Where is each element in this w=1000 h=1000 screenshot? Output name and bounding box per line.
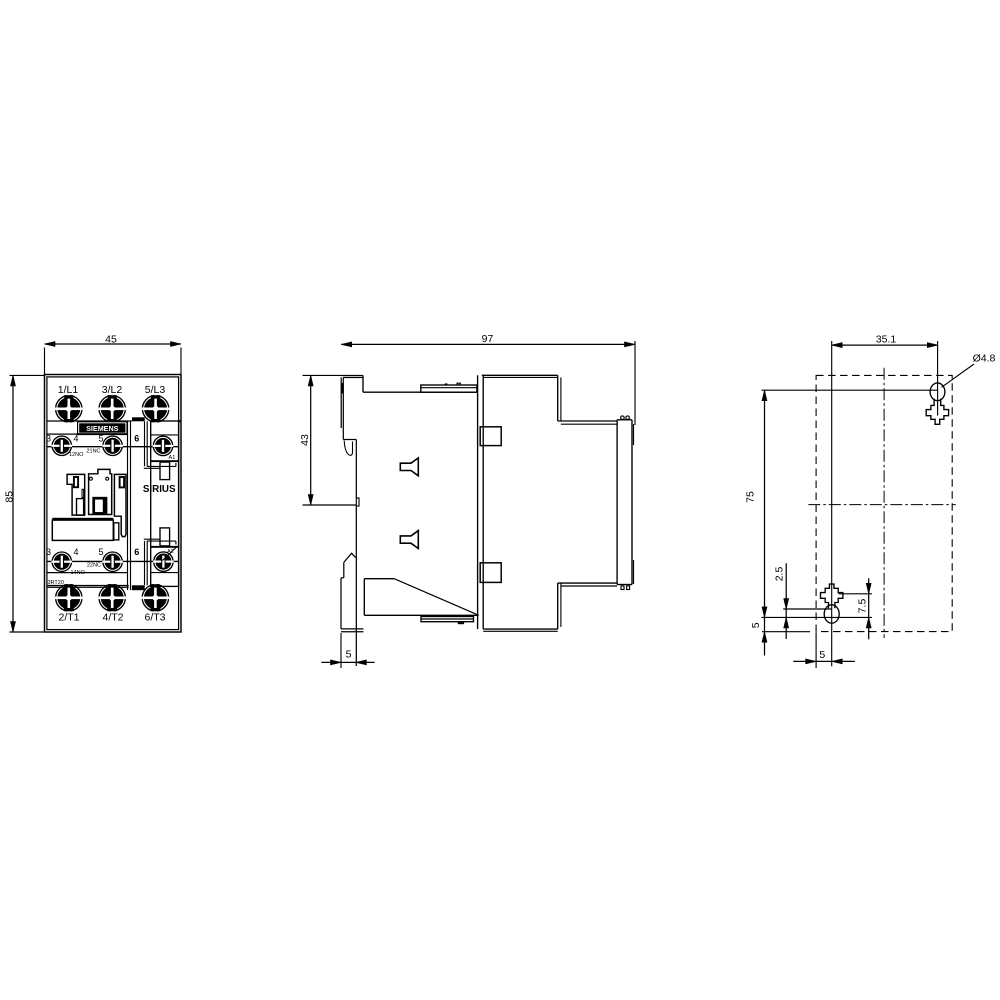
svg-text:2/T1: 2/T1	[58, 612, 79, 624]
svg-text:43: 43	[299, 434, 311, 446]
svg-text:SIRIUS: SIRIUS	[143, 484, 176, 495]
svg-text:3/L2: 3/L2	[102, 384, 123, 396]
svg-text:4: 4	[73, 547, 78, 557]
svg-text:21NC: 21NC	[86, 448, 100, 454]
svg-text:3: 3	[46, 434, 51, 444]
svg-text:1/L1: 1/L1	[58, 384, 79, 396]
svg-text:5: 5	[750, 622, 762, 628]
svg-text:7.5: 7.5	[856, 599, 868, 614]
svg-text:3: 3	[46, 547, 51, 557]
svg-text:5: 5	[98, 547, 103, 557]
svg-text:A1: A1	[169, 455, 176, 461]
svg-text:6/T3: 6/T3	[144, 612, 165, 624]
svg-text:4: 4	[73, 434, 78, 444]
svg-text:85: 85	[3, 491, 15, 503]
svg-text:12NO: 12NO	[69, 452, 84, 458]
svg-text:5/L3: 5/L3	[145, 384, 166, 396]
svg-text:6: 6	[134, 547, 139, 557]
svg-text:6: 6	[134, 434, 139, 444]
svg-text:5: 5	[819, 649, 825, 661]
svg-text:22NC: 22NC	[87, 563, 101, 569]
svg-text:Ø4.8: Ø4.8	[973, 353, 996, 365]
svg-text:75: 75	[745, 491, 757, 503]
svg-text:5: 5	[346, 649, 352, 661]
svg-text:4/T2: 4/T2	[102, 612, 123, 624]
svg-text:45: 45	[105, 334, 117, 346]
svg-text:SIEMENS: SIEMENS	[86, 424, 119, 433]
svg-text:2.5: 2.5	[774, 567, 786, 582]
svg-text:35.1: 35.1	[876, 334, 897, 346]
svg-text:97: 97	[482, 333, 494, 345]
svg-text:5: 5	[98, 434, 103, 444]
